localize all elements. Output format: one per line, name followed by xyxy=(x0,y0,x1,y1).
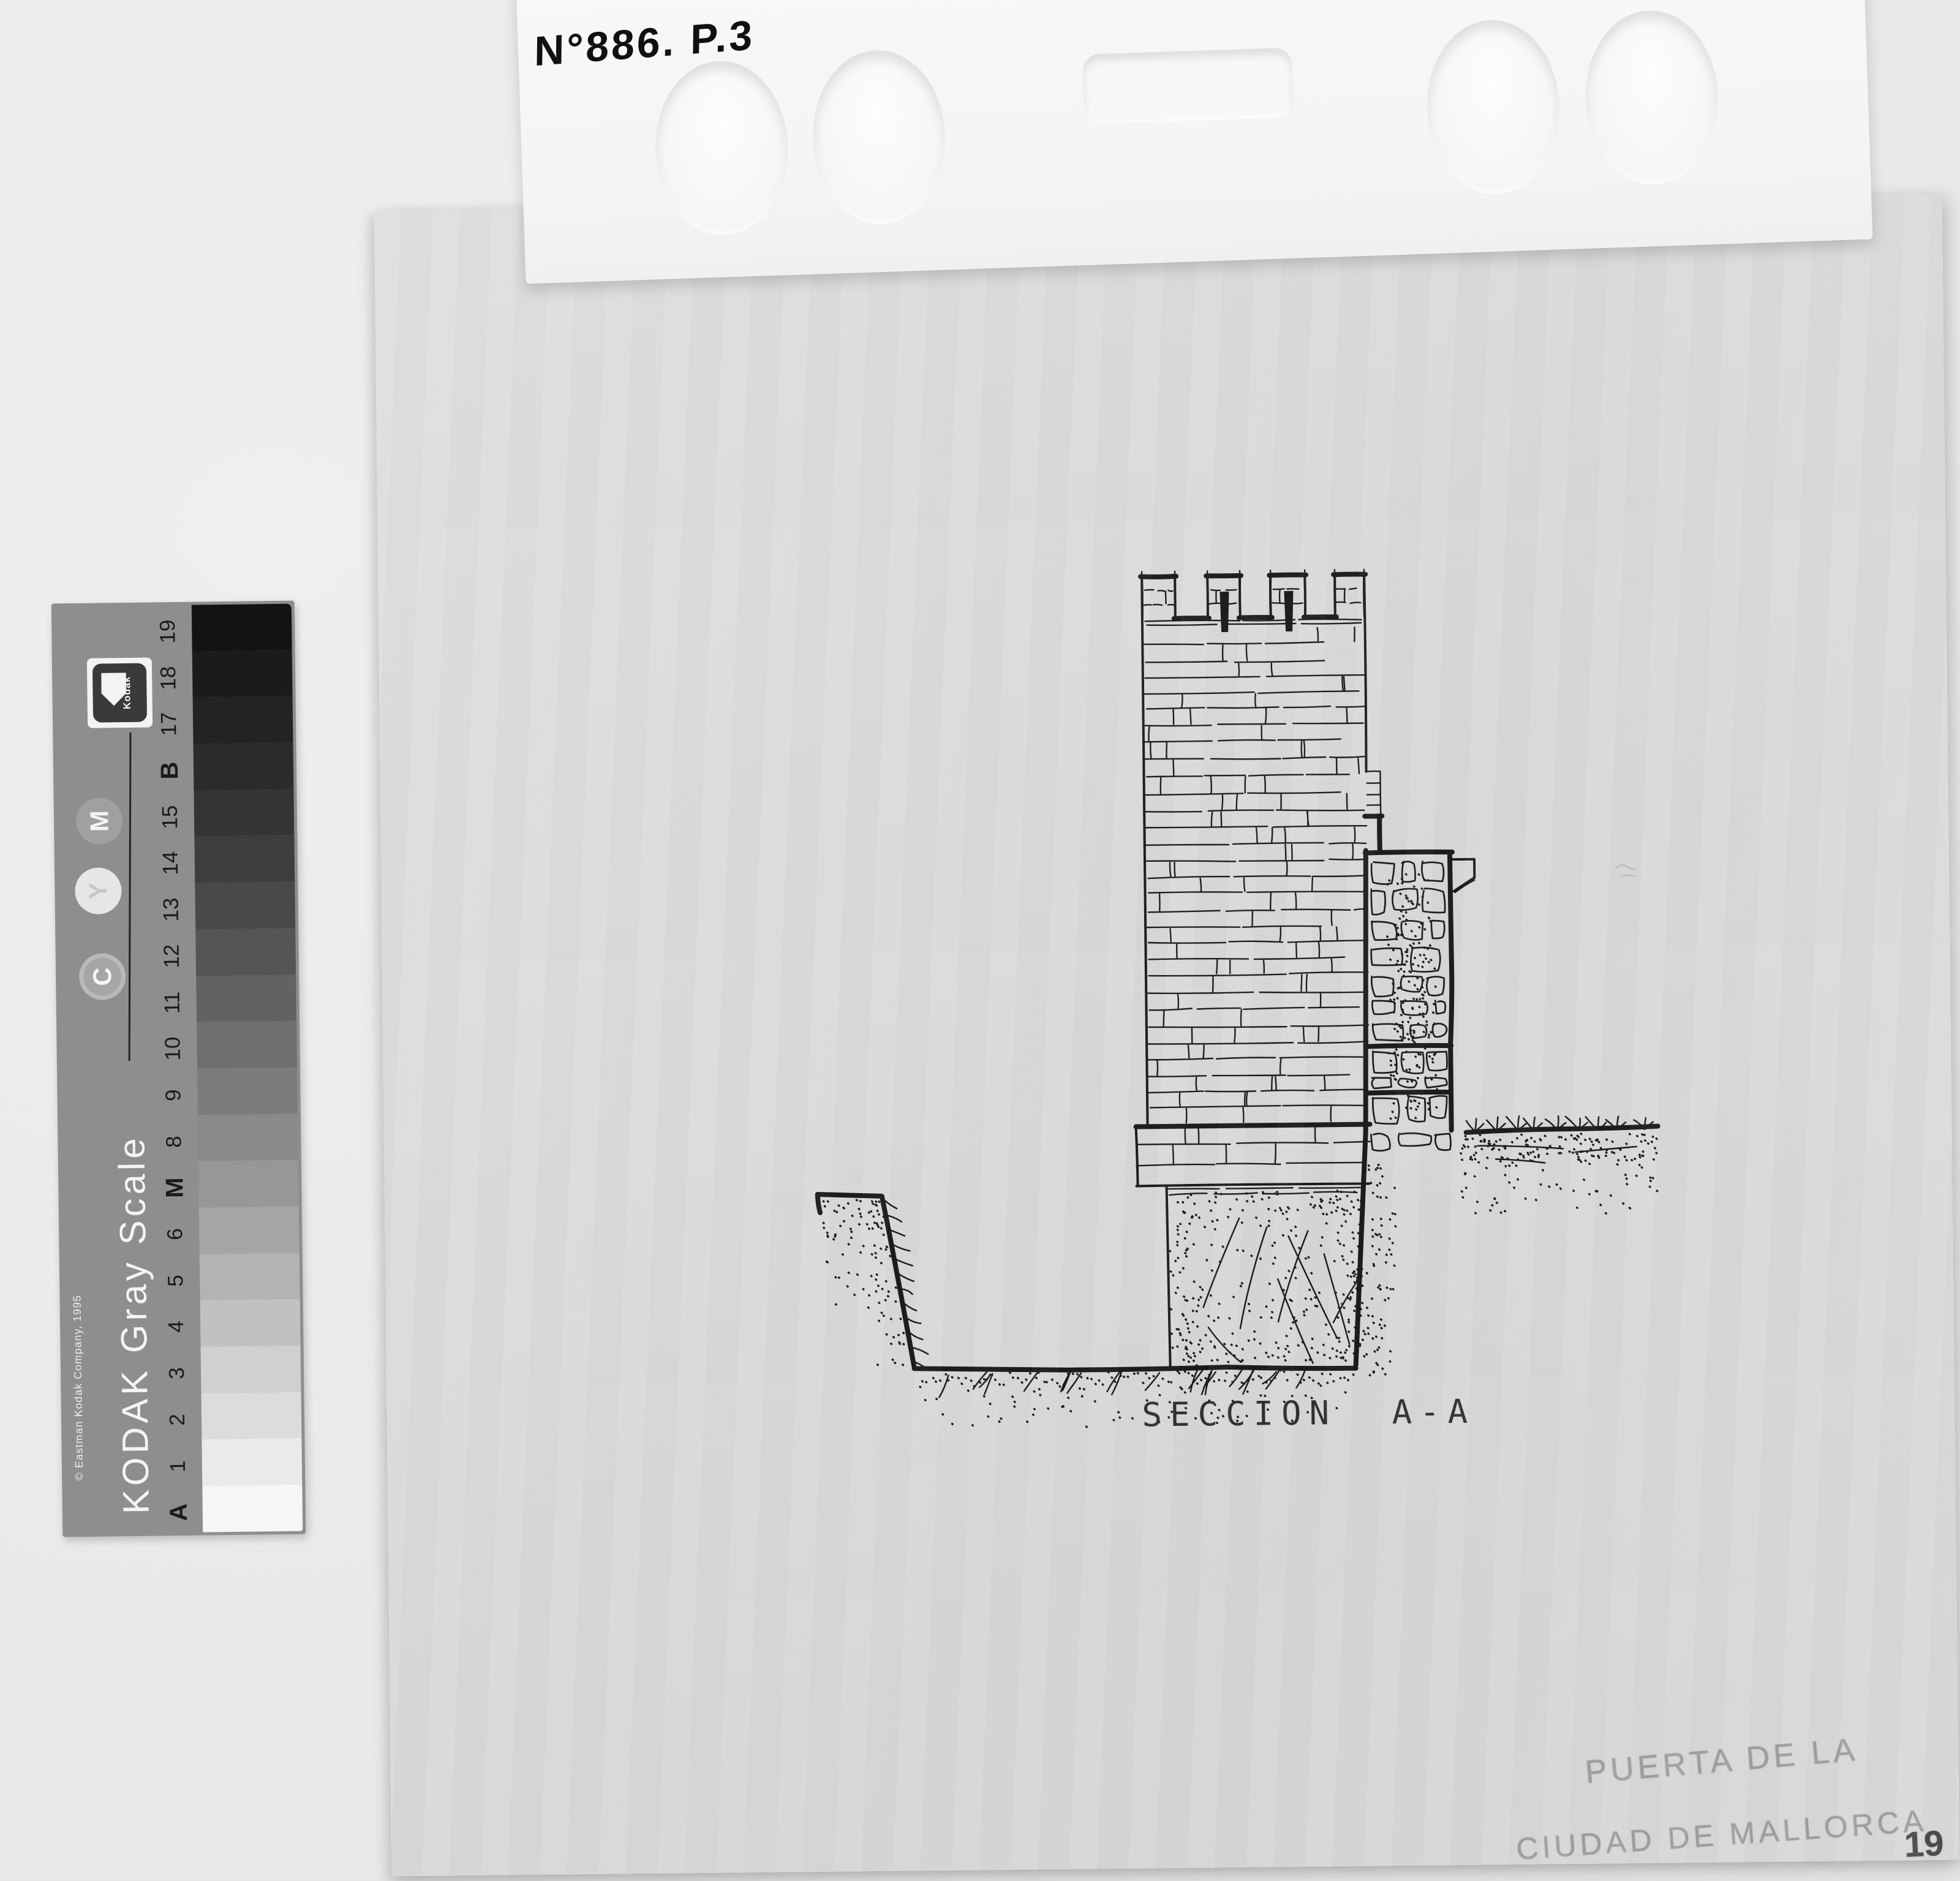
patch-label: 11 xyxy=(159,982,186,1022)
patch-label: 15 xyxy=(157,797,184,837)
gray-patch xyxy=(195,928,296,976)
patch-label: 9 xyxy=(160,1076,187,1115)
gray-patch xyxy=(196,974,296,1022)
gray-patch xyxy=(200,1299,301,1347)
gray-patch xyxy=(202,1438,302,1486)
drawing-layer-stone xyxy=(1368,861,1451,1151)
gray-patch xyxy=(197,1021,297,1069)
drawing-layer-scrib xyxy=(884,1115,1656,1398)
drawing-layer-heavy xyxy=(811,571,1660,1374)
patch-label: 18 xyxy=(155,658,183,698)
punch-hole xyxy=(1583,9,1721,187)
gray-patch xyxy=(198,1160,299,1208)
drawing-layer-dots xyxy=(820,872,1659,1430)
index-slot xyxy=(1082,48,1294,124)
patch-label: 12 xyxy=(158,937,186,976)
gray-patch xyxy=(198,1114,298,1161)
pencil-note-line1: PUERTA DE LA xyxy=(1584,1731,1860,1791)
patch-label: M xyxy=(161,1168,189,1208)
drawing-caption: SECCION A-A xyxy=(1142,1392,1476,1434)
gray-patch xyxy=(192,650,293,698)
patch-label: 8 xyxy=(160,1121,188,1161)
gray-patch xyxy=(194,835,295,883)
patch-label: 17 xyxy=(156,704,183,744)
patch-label: A xyxy=(165,1493,192,1532)
patch-label: 4 xyxy=(163,1307,190,1347)
patch-label: 5 xyxy=(162,1261,190,1300)
gray-patch xyxy=(202,1485,303,1532)
patch-label: 2 xyxy=(164,1400,192,1440)
arrow-slits xyxy=(1219,591,1294,632)
gray-patch xyxy=(200,1253,300,1300)
page-number-stamp: 19 xyxy=(1903,1823,1944,1866)
patch-label: B xyxy=(156,751,184,791)
gray-patch xyxy=(197,1068,298,1115)
gray-scale-patches xyxy=(192,604,303,1532)
patch-label: 1 xyxy=(165,1446,192,1486)
gray-patch xyxy=(195,882,295,930)
patch-label: 14 xyxy=(157,843,185,883)
gray-patch xyxy=(192,604,292,652)
gray-patch xyxy=(194,789,294,837)
gray-patch xyxy=(194,743,294,791)
patch-label: 3 xyxy=(164,1354,191,1393)
section-drawing xyxy=(804,565,1670,1407)
patch-labels: 191817B15141312111098M654321A xyxy=(51,605,203,1534)
patch-label: 10 xyxy=(159,1029,187,1069)
gray-patch xyxy=(201,1346,301,1393)
gray-patch xyxy=(201,1392,301,1439)
pencil-note-line2: CIUDAD DE MALLORCA xyxy=(1515,1803,1928,1867)
patch-label: 19 xyxy=(154,612,182,652)
punch-hole xyxy=(1424,18,1562,196)
gray-patch xyxy=(199,1207,300,1254)
patch-label: 13 xyxy=(157,890,185,930)
film-sleeve-card: N°886. P.3 xyxy=(516,0,1873,284)
patch-label: 6 xyxy=(162,1215,189,1254)
tracing-paper-sheet: SECCION A-A PUERTA DE LA CIUDAD DE MALLO… xyxy=(374,194,1959,1877)
gray-patch xyxy=(193,696,293,744)
drawing-layer-faint xyxy=(1616,865,1635,876)
kodak-gray-scale-strip: Kodak KODAK Gray Scale © Eastman Kodak C… xyxy=(51,601,306,1537)
punch-hole xyxy=(810,48,948,227)
punch-hole xyxy=(653,59,791,237)
photo-mount: SECCION A-A PUERTA DE LA CIUDAD DE MALLO… xyxy=(0,0,1960,1880)
